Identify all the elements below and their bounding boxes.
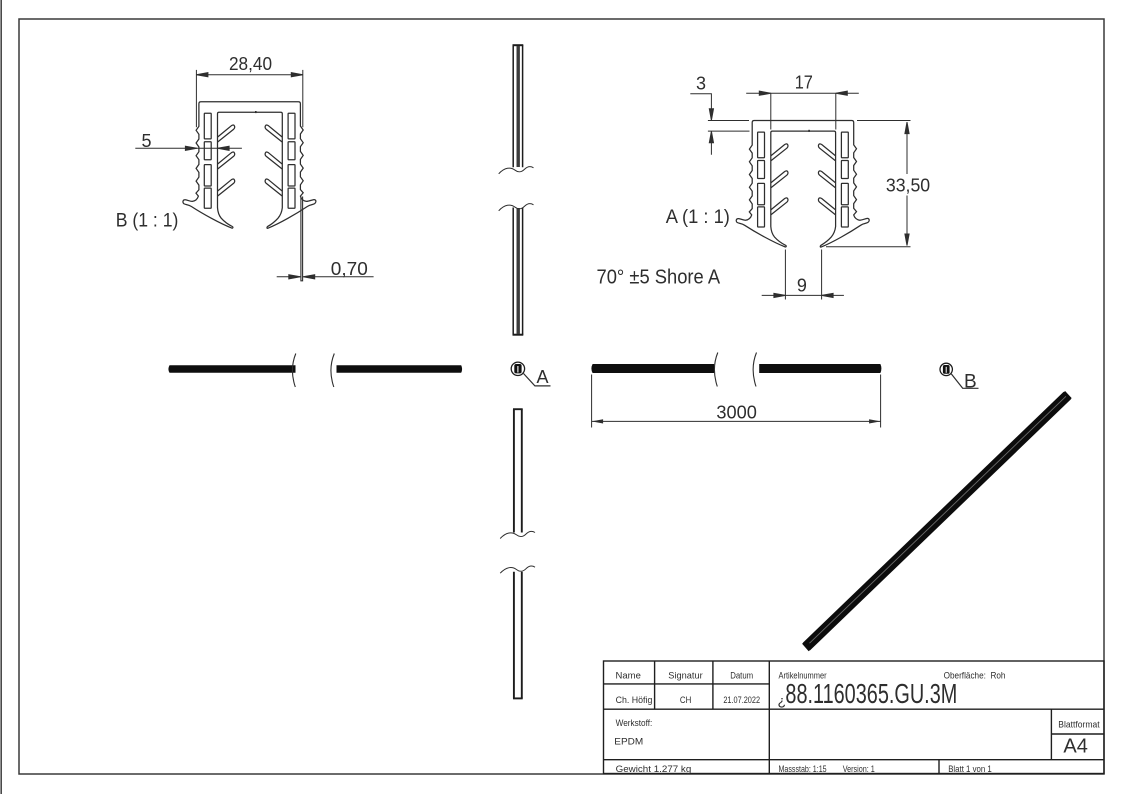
svg-text:Signatur: Signatur <box>668 671 703 682</box>
svg-text:5: 5 <box>141 131 151 151</box>
svg-text:A (1 : 1): A (1 : 1) <box>666 206 730 228</box>
svg-text:21.07.2022: 21.07.2022 <box>723 695 760 706</box>
svg-text:3000: 3000 <box>716 403 757 423</box>
svg-text:88.1160365.GU.3M: 88.1160365.GU.3M <box>785 678 957 709</box>
svg-text:A: A <box>537 367 549 387</box>
svg-text:70° ±5 Shore A: 70° ±5 Shore A <box>597 266 721 289</box>
svg-text:Massstab: 1:15: Massstab: 1:15 <box>779 764 827 775</box>
svg-text:Version: 1: Version: 1 <box>843 764 875 775</box>
svg-text:17: 17 <box>795 73 813 93</box>
svg-text:Werkstoff:: Werkstoff: <box>616 718 653 729</box>
svg-text:0,70: 0,70 <box>331 259 368 279</box>
svg-text:Blattformat: Blattformat <box>1058 720 1100 731</box>
svg-text:Ch. Höfig: Ch. Höfig <box>616 695 653 706</box>
svg-text:B (1 : 1): B (1 : 1) <box>116 209 179 231</box>
svg-text:CH: CH <box>680 695 691 706</box>
svg-text:Gewicht 1.277 kg: Gewicht 1.277 kg <box>616 764 692 775</box>
svg-text:9: 9 <box>797 275 807 295</box>
svg-text:A4: A4 <box>1063 735 1087 757</box>
svg-text:Blatt 1 von 1: Blatt 1 von 1 <box>948 764 992 775</box>
svg-text:3: 3 <box>696 74 706 94</box>
svg-text:28,40: 28,40 <box>229 54 272 74</box>
svg-text:Datum: Datum <box>730 671 753 682</box>
svg-text:EPDM: EPDM <box>614 737 643 748</box>
svg-text:B: B <box>964 371 977 392</box>
svg-text:33,50: 33,50 <box>886 176 930 196</box>
svg-text:Name: Name <box>616 671 641 682</box>
